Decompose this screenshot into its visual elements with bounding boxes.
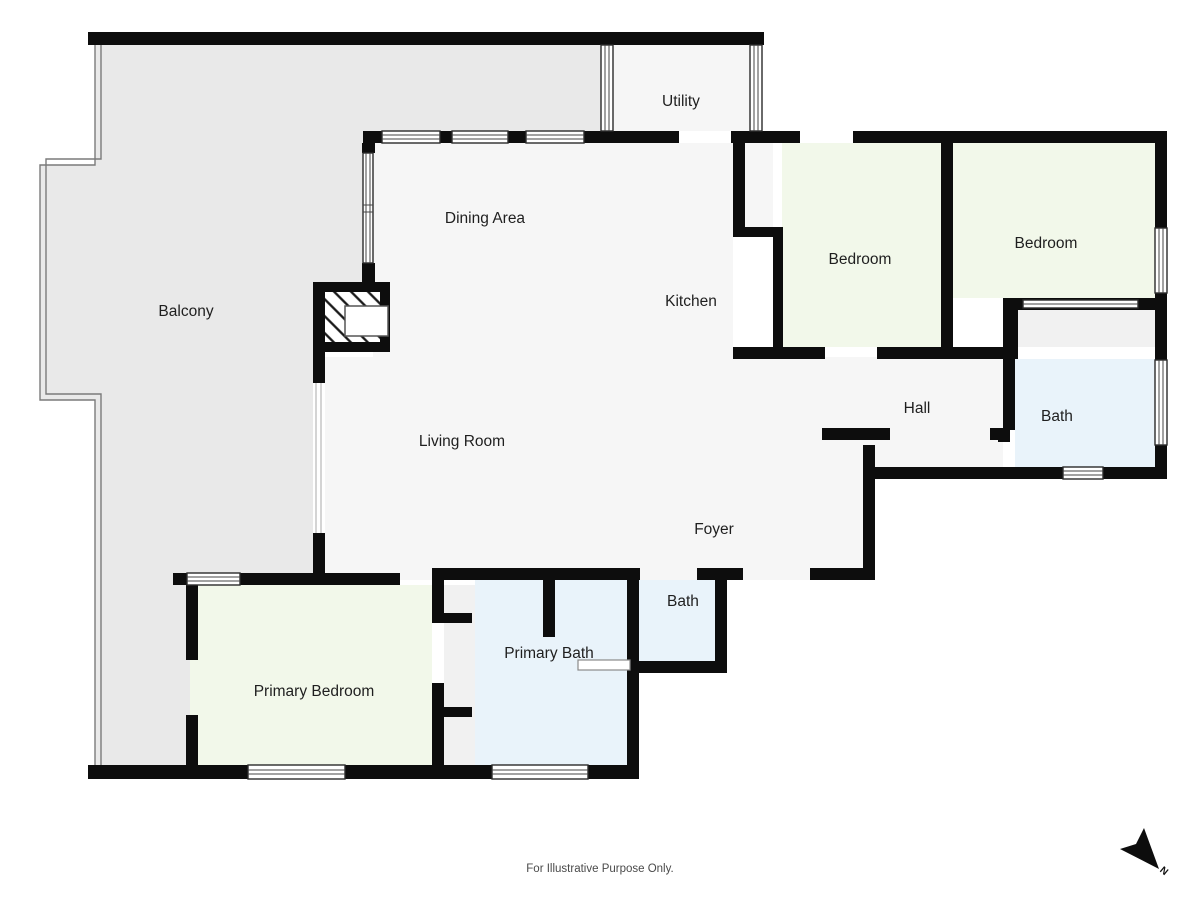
room-label-balcony: Balcony: [158, 303, 213, 320]
window-primary-bath-bottom: [492, 765, 588, 779]
utility-floor: [613, 45, 750, 131]
room-label-utility: Utility: [662, 93, 700, 110]
wall-dining-top-pier1: [440, 131, 452, 143]
wall-closet-bar1: [432, 613, 472, 623]
room-label-bath-1: Bath: [1041, 408, 1073, 425]
north-arrow: N: [1120, 828, 1170, 878]
wall-closet-left: [1003, 298, 1018, 359]
window-bath1-bottom: [1063, 467, 1103, 479]
fireplace: [325, 282, 390, 352]
floor-plan-drawing: Balcony Utility Dining Area Kitchen Bedr…: [0, 0, 1200, 900]
wall-foyer-right: [863, 445, 875, 580]
wall-right-2: [1155, 293, 1167, 360]
primary-bedroom-floor: [190, 585, 432, 765]
north-arrow-label: N: [1157, 865, 1170, 878]
balcony-outline-outer: [40, 45, 95, 765]
wall-dining-top-pier2: [508, 131, 526, 143]
wall-kitchen-alcove-h: [733, 227, 777, 237]
room-label-hall: Hall: [904, 400, 931, 417]
wall-kitchen-base-left: [733, 347, 825, 359]
balcony-slider-door: [316, 383, 321, 533]
room-label-foyer: Foyer: [694, 521, 734, 538]
room-label-bedroom-2: Bedroom: [1015, 235, 1078, 252]
wall-wing-bottom-right: [1103, 467, 1167, 479]
window-primary-bedroom-top: [187, 573, 240, 585]
wall-south568-left: [432, 568, 640, 580]
room-label-living: Living Room: [419, 433, 505, 450]
window-bath1-right: [1155, 360, 1167, 445]
room-label-bath-2: Bath: [667, 593, 699, 610]
footer-note: For Illustrative Purpose Only.: [526, 863, 673, 875]
wall-top: [88, 32, 764, 45]
balcony-outline-inner: [46, 45, 101, 765]
wall-south568-right: [697, 568, 743, 580]
wall-primary-bath-stub: [543, 580, 555, 637]
wall-primary-bed-left-2: [186, 715, 198, 765]
room-label-bedroom-1: Bedroom: [829, 251, 892, 268]
wall-primary-bed-left-1: [186, 585, 198, 660]
fireplace-bottom: [325, 342, 390, 352]
room-label-dining: Dining Area: [445, 210, 526, 227]
wall-foyer-bottom: [810, 568, 875, 580]
wall-closet-bar2: [432, 707, 472, 717]
wall-primary-bed-top-stub: [173, 573, 187, 585]
window-utility-right: [750, 45, 762, 131]
wall-dining-left-cap2: [362, 263, 375, 282]
wall-kitchen-alcove-v: [733, 143, 745, 237]
dining-kitchen-floor: [373, 143, 733, 357]
wall-top-right-b: [853, 131, 1167, 143]
bedroom1-floor: [782, 143, 941, 347]
window-dining-3: [526, 131, 584, 143]
wall-primary-bath-right: [627, 568, 639, 779]
wall-primary-bed-top: [240, 573, 400, 585]
wall-bedroom1-left: [773, 227, 783, 359]
fireplace-top: [325, 282, 390, 292]
room-label-primary-bath: Primary Bath: [504, 645, 594, 662]
wall-bath1-left: [1003, 359, 1015, 430]
window-bedroom2-right: [1155, 228, 1167, 293]
wall-bottom-left: [88, 765, 248, 779]
window-dining-1: [382, 131, 440, 143]
wall-hall-bottom-left: [822, 428, 890, 440]
living-foyer-floor: [325, 357, 875, 580]
wall-dining-top-right: [584, 131, 613, 143]
room-label-primary-bedroom: Primary Bedroom: [254, 683, 375, 700]
bath1-floor: [1015, 359, 1155, 467]
wall-bottom-middle: [345, 765, 492, 779]
wall-dining-left-cap1: [362, 143, 375, 153]
fireplace-firebox: [345, 306, 388, 336]
window-primary-bedroom-bottom: [248, 765, 345, 779]
wall-bedroom-divider: [941, 143, 953, 359]
wall-top-right-a: [762, 131, 800, 143]
closet-front: [1023, 300, 1138, 308]
room-label-kitchen: Kitchen: [665, 293, 717, 310]
wall-fireplace-left: [313, 282, 325, 383]
floor-plan-page: Balcony Utility Dining Area Kitchen Bedr…: [0, 0, 1200, 900]
wall-utility-bottom-right: [731, 131, 764, 143]
wall-primary-suite-v2: [432, 683, 444, 765]
bedroom2-floor: [953, 143, 1155, 298]
kitchen-alcove-floor: [745, 143, 773, 227]
window-dining-2: [452, 131, 508, 143]
wall-right-1: [1155, 143, 1167, 228]
wall-bath1-door-stub: [998, 428, 1010, 442]
wall-wing-bottom-left: [863, 467, 1063, 479]
wall-dining-top-corner: [363, 131, 382, 143]
wall-bath2-bottom: [637, 661, 727, 673]
wall-bottom-right: [588, 765, 639, 779]
window-utility-left: [601, 45, 613, 131]
window-dining-left: [363, 153, 373, 263]
primary-closet-floor: [444, 585, 480, 765]
wall-bath2-right: [715, 580, 727, 661]
north-arrow-shape: [1120, 828, 1159, 869]
